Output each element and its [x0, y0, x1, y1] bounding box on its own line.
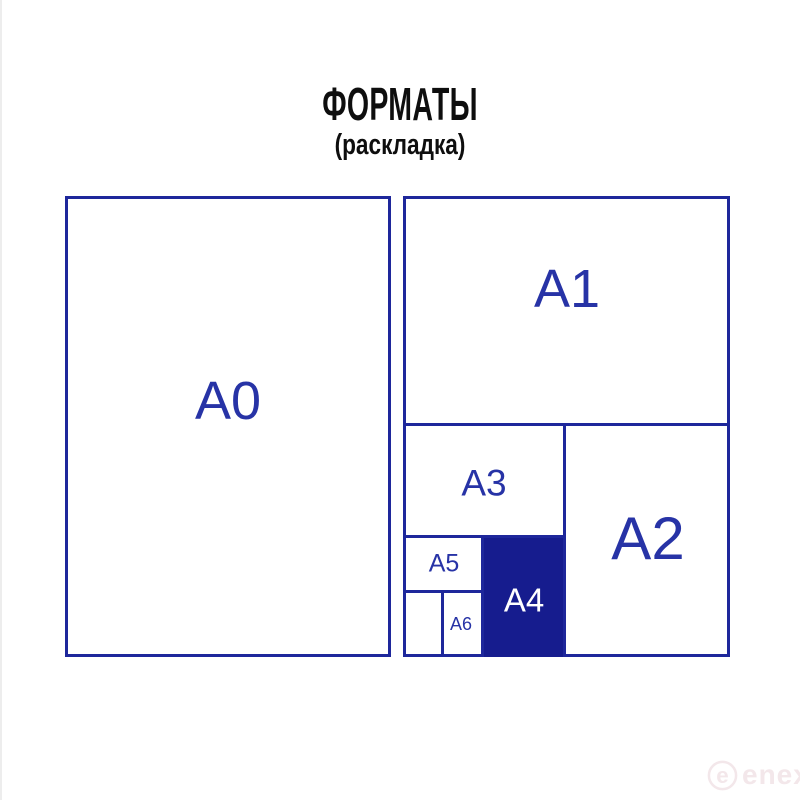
scan-edge-line: [0, 0, 2, 800]
watermark: e enex: [706, 757, 800, 793]
sheet-a2-label: A2: [611, 509, 684, 569]
sheet-a6-label: A6: [450, 615, 472, 633]
watermark-brand-text: enex: [742, 761, 800, 789]
sheet-a5-label: A5: [429, 552, 460, 577]
page-subtitle: (раскладка): [88, 130, 712, 160]
enex-circle-e-icon: e: [706, 759, 739, 792]
page-title: ФОРМАТЫ: [152, 81, 648, 127]
page-background: ФОРМАТЫ (раскладка) A0 A1 A2 A3 A4 A5 A6…: [0, 0, 800, 800]
sheet-cell-unlabeled: [403, 590, 444, 657]
sheet-a4-label: A4: [504, 584, 544, 617]
svg-text:e: e: [716, 763, 728, 788]
sheet-a1-label: A1: [534, 262, 600, 316]
sheet-a0-label: A0: [195, 374, 261, 428]
sheet-a3-label: A3: [461, 465, 506, 502]
